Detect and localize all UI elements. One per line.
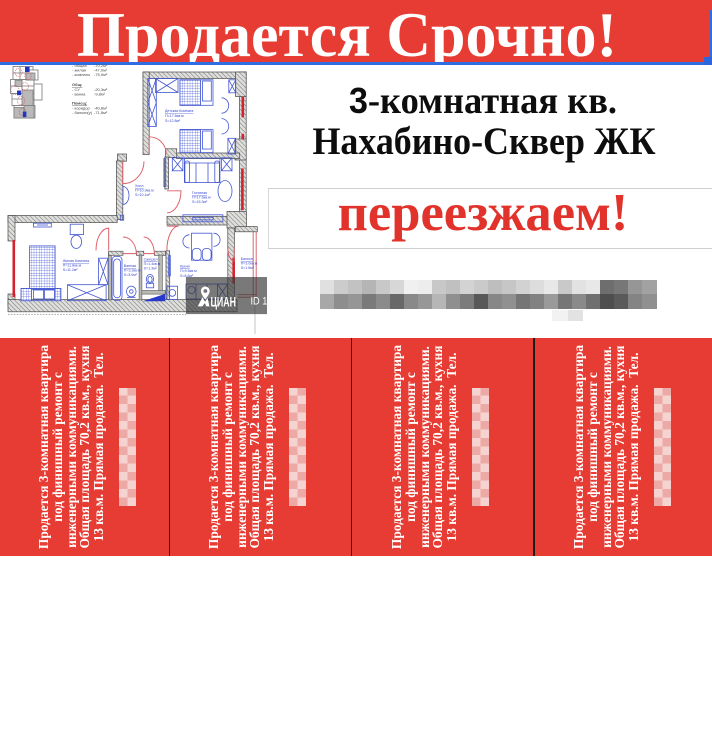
svg-text:П=17.6кв.м: П=17.6кв.м xyxy=(192,196,211,200)
svg-text:- ванна: - ванна xyxy=(72,92,86,97)
svg-text:ЦИАН: ЦИАН xyxy=(211,294,237,310)
svg-text:П=10.9кв.м: П=10.9кв.м xyxy=(135,189,154,193)
svg-text:П=17.6кв.м: П=17.6кв.м xyxy=(165,114,184,118)
svg-text:S=1.3м²: S=1.3м² xyxy=(144,267,158,271)
svg-text:S=11.2м²: S=11.2м² xyxy=(63,268,79,272)
svg-text:П=1.4кв.м: П=1.4кв.м xyxy=(144,262,161,266)
svg-text:S=15.3м²: S=15.3м² xyxy=(192,200,208,204)
svg-text:Кухня: Кухня xyxy=(180,265,190,269)
svg-text:Санузел: Санузел xyxy=(144,257,158,261)
svg-text:П=9.5кв.м: П=9.5кв.м xyxy=(180,269,197,273)
svg-text:-75,0м²: -75,0м² xyxy=(94,72,108,77)
svg-text:-9,8м²: -9,8м² xyxy=(94,92,106,97)
svg-text:Ванная: Ванная xyxy=(124,264,136,268)
svg-text:S=3.0м²: S=3.0м² xyxy=(124,273,138,277)
svg-text:- балкон(у): - балкон(у) xyxy=(72,110,93,115)
svg-text:Гостиная: Гостиная xyxy=(192,191,207,195)
svg-text:Холл: Холл xyxy=(135,184,143,188)
svg-text:S=1.5м²: S=1.5м² xyxy=(241,266,255,270)
svg-text:ID 10: ID 10 xyxy=(251,296,273,308)
svg-text:S=12.8м²: S=12.8м² xyxy=(165,119,181,123)
svg-text:П=3.0кв.м: П=3.0кв.м xyxy=(241,262,258,266)
svg-text:П=3.3кв.м: П=3.3кв.м xyxy=(124,269,141,273)
svg-text:S=10.1м²: S=10.1м² xyxy=(135,193,151,197)
svg-text:-71,8м²: -71,8м² xyxy=(94,110,108,115)
svg-text:Жилая Комната: Жилая Комната xyxy=(63,259,89,263)
svg-text:Детская Комната: Детская Комната xyxy=(165,109,193,113)
svg-text:Балкон: Балкон xyxy=(241,257,253,261)
svg-text:П=11.8кв.м: П=11.8кв.м xyxy=(63,264,82,268)
svg-text:- комнаты: - комнаты xyxy=(72,72,90,77)
